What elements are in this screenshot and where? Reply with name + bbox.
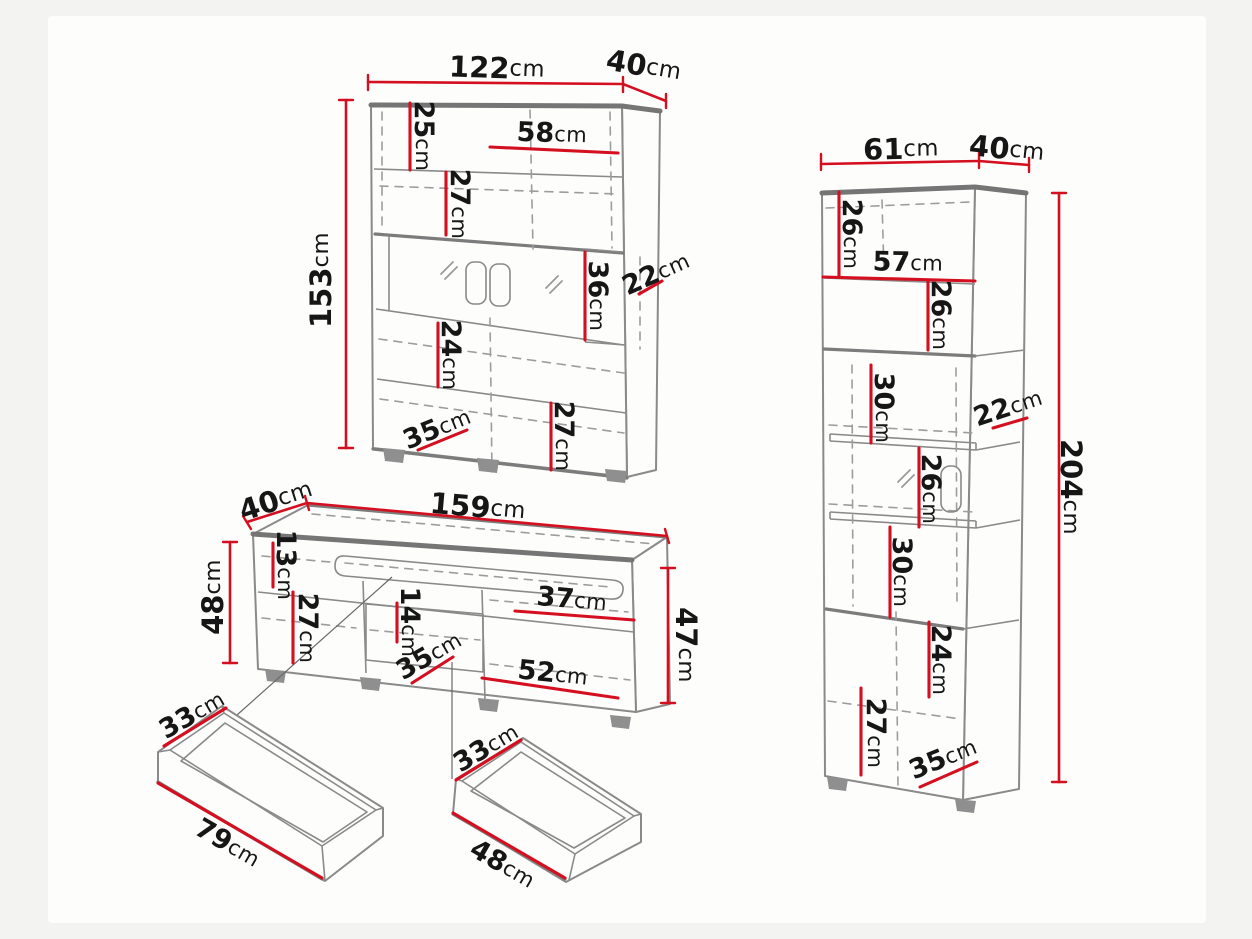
- dim-tv-flap: 13cm: [271, 530, 302, 601]
- cabinet-foot: [383, 448, 405, 463]
- dim-tall-shelf-width: 57cm: [872, 246, 943, 278]
- cabinet-foot: [360, 677, 381, 691]
- cabinet-foot: [478, 698, 499, 712]
- dim-tall-height: 204cm: [1054, 439, 1088, 535]
- furniture-dimension-sheet: 122cm 40cm 153cm 25cm 58cm 27cm 36cm 22c…: [0, 0, 1252, 939]
- dim-wall-mid-shelf: 27cm: [445, 169, 476, 240]
- dimension-diagram: 122cm 40cm 153cm 25cm 58cm 27cm 36cm 22c…: [0, 0, 1252, 939]
- dim-tv-height-right: 47cm: [669, 607, 703, 683]
- dim-wall-lower-shelf-top: 24cm: [436, 320, 467, 391]
- dim-tall-open-shelf-2: 26cm: [916, 454, 947, 525]
- dim-tall-open-shelf-1: 30cm: [869, 373, 900, 444]
- cabinet-foot: [955, 799, 976, 813]
- dim-wall-height: 153cm: [304, 232, 338, 328]
- dim-tall-open-shelf-3: 30cm: [887, 537, 918, 608]
- dim-wall-glass-section: 36cm: [583, 261, 614, 332]
- dim-tall-width: 61cm: [863, 131, 939, 166]
- dim-wall-top-shelf: 25cm: [409, 101, 440, 172]
- cabinet-foot: [477, 458, 499, 473]
- dim-tall-lower-shelf-bottom: 27cm: [861, 698, 892, 769]
- cabinet-foot: [605, 469, 627, 483]
- dim-tv-height-left: 48cm: [196, 559, 230, 635]
- dim-tall-lower-shelf-top: 24cm: [926, 625, 957, 696]
- dim-wall-shelf-width: 58cm: [516, 116, 588, 149]
- cabinet-foot: [610, 715, 631, 729]
- dim-tall-shelf-1: 26cm: [837, 199, 868, 270]
- dim-tv-door: 27cm: [293, 593, 324, 664]
- dim-tall-shelf-2: 26cm: [926, 280, 957, 351]
- cabinet-foot: [827, 777, 848, 791]
- dim-wall-lower-shelf-bottom: 27cm: [549, 401, 580, 472]
